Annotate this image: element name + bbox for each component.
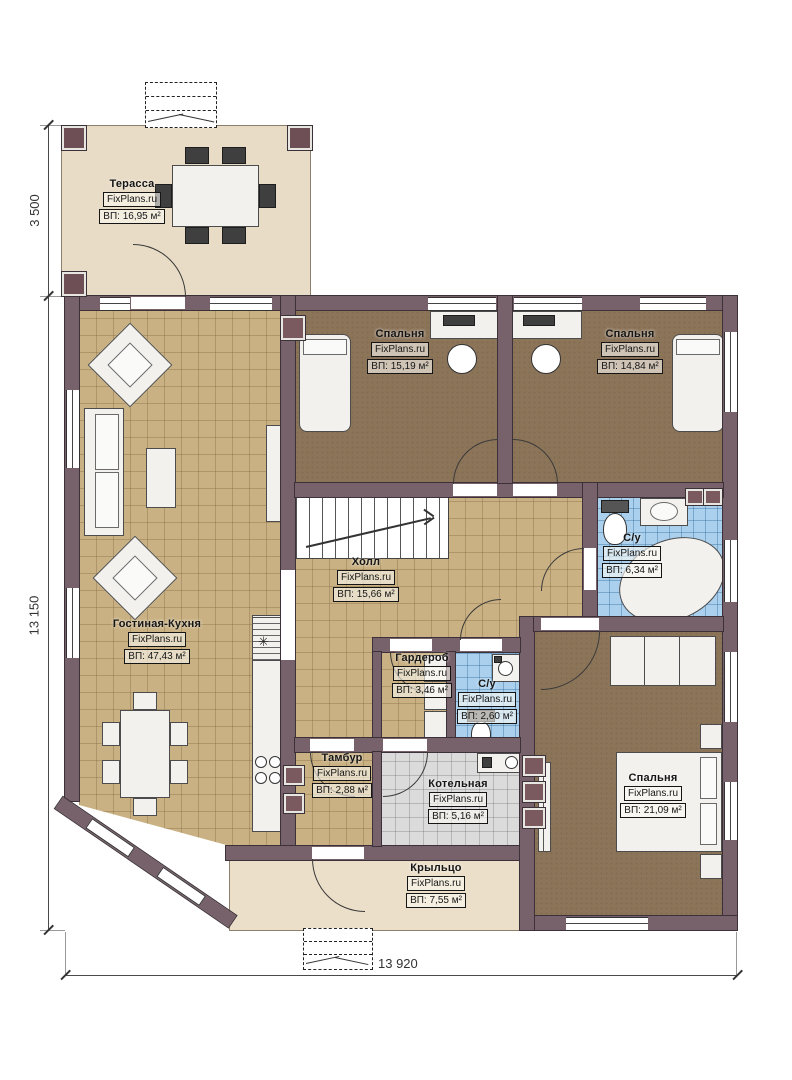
area-box: ВП: 5,16 м² — [428, 809, 488, 824]
extension-line — [40, 296, 65, 297]
brand-box: FixPlans.ru — [371, 342, 429, 357]
nightstand — [700, 854, 722, 879]
room-name: Холл — [318, 556, 414, 568]
tv-console — [266, 425, 282, 522]
area-box: ВП: 3,46 м² — [392, 683, 452, 698]
bath-shelf — [704, 489, 722, 505]
room-label-living: Гостиная-Кухня FixPlans.ru ВП: 47,43 м² — [92, 618, 222, 664]
area-box: ВП: 47,43 м² — [124, 649, 189, 664]
step-line — [304, 941, 372, 942]
door-opening-tambour — [310, 739, 354, 751]
area-box: ВП: 7,55 м² — [406, 893, 466, 908]
brand-box: FixPlans.ru — [601, 342, 659, 357]
terrace-chair — [222, 227, 246, 244]
door-opening-boiler — [383, 739, 427, 751]
brand-box: FixPlans.ru — [337, 570, 395, 585]
fridge-icon: ✳ — [258, 634, 269, 650]
sink-basin — [650, 502, 678, 521]
room-name: Спальня — [582, 328, 678, 340]
room-name: Котельная — [408, 778, 508, 790]
desk-monitor — [443, 315, 475, 326]
room-label-porch: Крыльцо FixPlans.ru ВП: 7,55 м² — [388, 862, 484, 908]
room-name: Спальня — [352, 328, 448, 340]
wall-bedrooms-divider — [498, 296, 512, 483]
room-name: С/у — [592, 532, 672, 544]
window-chamfer — [85, 818, 135, 857]
room-label-terrace: Терасса FixPlans.ru ВП: 16,95 м² — [84, 178, 180, 224]
staircase — [295, 497, 449, 559]
window — [724, 332, 738, 412]
window — [210, 297, 272, 311]
hall-floor-lower — [295, 638, 373, 738]
dining-table — [120, 710, 170, 798]
window — [66, 390, 80, 468]
stove-burner — [255, 772, 267, 784]
window — [100, 297, 130, 311]
dim-line-vertical-house — [48, 296, 49, 930]
dining-chair — [170, 722, 188, 746]
area-box: ВП: 6,34 м² — [602, 563, 662, 578]
closet-shelf — [424, 711, 448, 738]
room-name: Гостиная-Кухня — [92, 618, 222, 630]
terrace-steps — [145, 82, 217, 128]
door-opening-wardrobe — [390, 639, 432, 651]
desk-monitor — [523, 315, 555, 326]
room-label-bedroom3: Спальня FixPlans.ru ВП: 21,09 м² — [600, 772, 706, 818]
duct-block — [523, 782, 545, 802]
dim-label-house-depth: 13 150 — [26, 596, 41, 636]
room-label-bedroom2: Спальня FixPlans.ru ВП: 14,84 м² — [582, 328, 678, 374]
brand-box: FixPlans.ru — [103, 192, 161, 207]
area-box: ВП: 21,09 м² — [620, 803, 685, 818]
area-box: ВП: 14,84 м² — [597, 359, 662, 374]
wall-left — [65, 296, 79, 801]
brand-box: FixPlans.ru — [603, 546, 661, 561]
window — [724, 652, 738, 722]
terrace-chair — [259, 184, 276, 208]
brand-box: FixPlans.ru — [313, 766, 371, 781]
terrace-post — [62, 126, 86, 150]
dining-chair — [170, 760, 188, 784]
step-line — [304, 954, 372, 955]
bed-pillow — [676, 339, 720, 355]
step-line — [146, 96, 216, 97]
room-name: Терасса — [84, 178, 180, 190]
flue-block — [281, 316, 305, 340]
area-box: ВП: 15,66 м² — [333, 587, 398, 602]
area-box: ВП: 16,95 м² — [99, 209, 164, 224]
stove-burner — [269, 756, 281, 768]
bath-shelf — [686, 489, 704, 505]
window — [514, 297, 582, 311]
extension-line — [65, 932, 66, 975]
stove-burner — [255, 756, 267, 768]
brand-box: FixPlans.ru — [128, 632, 186, 647]
door-opening-bathroom2 — [460, 639, 502, 651]
terrace-chair — [222, 147, 246, 164]
dim-label-house-width: 13 920 — [378, 956, 418, 971]
dining-chair — [102, 760, 120, 784]
area-box: ВП: 2,60 м² — [457, 709, 517, 724]
area-box: ВП: 2,88 м² — [312, 783, 372, 798]
terrace-post — [62, 272, 86, 296]
window — [724, 782, 738, 840]
dining-chair — [102, 722, 120, 746]
room-name: Крыльцо — [388, 862, 484, 874]
terrace-table — [172, 165, 259, 227]
room-label-bathroom1: С/у FixPlans.ru ВП: 6,34 м² — [592, 532, 672, 578]
door-opening-bedroom2 — [513, 484, 557, 496]
door-opening-front — [312, 847, 364, 859]
window — [66, 588, 80, 658]
step-diagonal — [179, 114, 214, 122]
stove-burner — [269, 772, 281, 784]
terrace-post — [288, 126, 312, 150]
room-label-bathroom2: С/у FixPlans.ru ВП: 2,60 м² — [446, 678, 528, 724]
sofa-cushion — [95, 414, 119, 470]
brand-box: FixPlans.ru — [393, 666, 451, 681]
dim-label-terrace-depth: 3 500 — [27, 194, 42, 227]
duct-block — [523, 808, 545, 828]
room-label-hall: Холл FixPlans.ru ВП: 15,66 м² — [318, 556, 414, 602]
wardrobe-cabinet — [610, 636, 716, 686]
dim-line-vertical-terrace — [48, 125, 49, 296]
door-opening-bedroom3 — [541, 618, 599, 630]
dim-line-horizontal — [65, 975, 737, 976]
duct-block — [523, 756, 545, 776]
terrace-chair — [185, 147, 209, 164]
side-table — [146, 448, 176, 508]
door-opening-terrace — [131, 297, 185, 309]
brand-box: FixPlans.ru — [624, 786, 682, 801]
room-name: Тамбур — [298, 752, 386, 764]
boiler-switch — [482, 757, 492, 768]
boiler-dial — [505, 756, 518, 769]
window-chamfer — [156, 867, 206, 906]
room-label-boiler: Котельная FixPlans.ru ВП: 5,16 м² — [408, 778, 508, 824]
bed-pillow — [303, 339, 347, 355]
step-diagonal — [335, 957, 368, 965]
wall-bottom-left — [226, 846, 534, 860]
extension-line — [736, 932, 737, 975]
toilet-tank — [601, 500, 629, 513]
nightstand — [700, 724, 722, 749]
room-label-tambour: Тамбур FixPlans.ru ВП: 2,88 м² — [298, 752, 386, 798]
brand-box: FixPlans.ru — [407, 876, 465, 891]
terrace-chair — [185, 227, 209, 244]
window — [428, 297, 496, 311]
extension-line — [40, 930, 65, 931]
porch-steps — [303, 928, 373, 970]
passage-living-hall — [281, 570, 295, 660]
sofa-cushion — [95, 472, 119, 528]
brand-box: FixPlans.ru — [458, 692, 516, 707]
window — [724, 540, 738, 602]
wall-bedrooms-bottom — [295, 483, 723, 497]
dining-chair — [133, 692, 157, 710]
dining-chair — [133, 798, 157, 816]
area-box: ВП: 15,19 м² — [367, 359, 432, 374]
room-name: С/у — [446, 678, 528, 690]
room-name: Спальня — [600, 772, 706, 784]
floor-plan: 3 500 13 150 13 920 — [0, 0, 792, 1080]
desk-chair — [447, 344, 477, 374]
desk-chair — [531, 344, 561, 374]
room-name: Гардероб — [378, 652, 466, 664]
step-line — [146, 110, 216, 111]
window — [640, 297, 706, 311]
door-opening-bedroom1 — [453, 484, 497, 496]
window — [566, 917, 648, 931]
brand-box: FixPlans.ru — [429, 792, 487, 807]
washing-machine-door — [498, 661, 513, 676]
room-label-bedroom1: Спальня FixPlans.ru ВП: 15,19 м² — [352, 328, 448, 374]
